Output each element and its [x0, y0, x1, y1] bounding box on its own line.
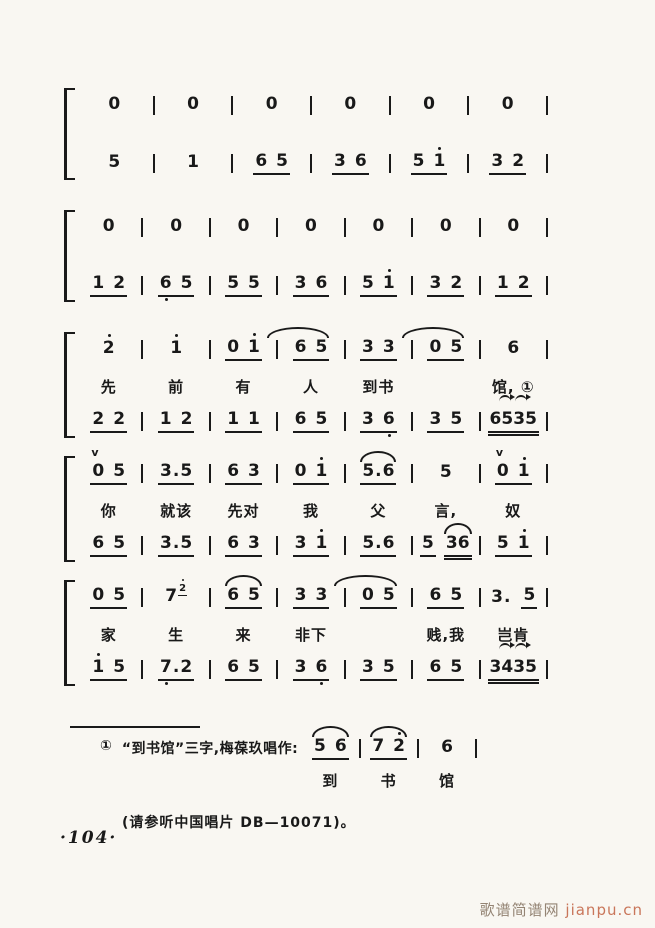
- measure: 51: [348, 274, 409, 297]
- note-group: 0: [438, 217, 454, 238]
- lyric-line: 到书馆: [304, 768, 479, 792]
- note-digit: 0: [103, 218, 115, 235]
- note-digit: 2: [393, 738, 405, 755]
- measure: 0: [415, 217, 476, 238]
- measure: 33: [280, 586, 341, 609]
- note-digit: 1: [434, 153, 446, 170]
- note-digit: 0: [187, 96, 199, 113]
- barline: [209, 218, 211, 237]
- note-group: 65: [225, 658, 262, 681]
- footnote-marker: ①: [100, 738, 112, 754]
- note-digit: 5: [248, 659, 260, 676]
- note-digit: 6: [441, 739, 453, 756]
- note-group: 3435: [488, 658, 539, 681]
- note-digit: 0: [502, 96, 514, 113]
- note-digit: 6: [92, 535, 104, 552]
- barline: [344, 536, 346, 555]
- note-group: 0: [500, 95, 516, 116]
- barline: [479, 464, 481, 483]
- note-digit: 0: [170, 218, 182, 235]
- note-digit: 2: [180, 659, 192, 676]
- measure: 5: [415, 463, 476, 484]
- system-bracket: [64, 210, 75, 302]
- note-digit: 6: [315, 659, 327, 676]
- note-group: 35: [427, 410, 464, 433]
- note-digit: 3: [334, 153, 346, 170]
- note-group: 51: [495, 534, 532, 557]
- note-digit: 1: [497, 275, 509, 292]
- watermark-site-name: 歌谱简谱网: [480, 901, 560, 919]
- note-digit: 5: [383, 659, 395, 676]
- barline: [141, 340, 143, 359]
- barline: [276, 588, 278, 607]
- notation-line: 5165365132: [78, 146, 550, 180]
- barline: [209, 340, 211, 359]
- note-digit: 2: [113, 411, 125, 428]
- measure: 0: [280, 217, 341, 238]
- note-group: 72: [163, 587, 189, 608]
- system-bracket: [64, 580, 75, 686]
- note-group: 01: [225, 338, 262, 361]
- measure: 65: [78, 534, 139, 557]
- note-group: 1: [168, 339, 184, 360]
- barline: [276, 276, 278, 295]
- note-group: 05: [360, 586, 397, 609]
- note-digit: 3: [295, 275, 307, 292]
- note-digit: 3: [362, 339, 374, 356]
- barline: [344, 412, 346, 431]
- note-digit: 1: [227, 411, 239, 428]
- note-digit: 6: [355, 153, 367, 170]
- note-digit: 5: [113, 535, 125, 552]
- note-digit: 0: [362, 587, 374, 604]
- measure: 5: [78, 153, 151, 174]
- note-group: 0: [236, 217, 252, 238]
- breath-mark-icon: v: [91, 447, 98, 458]
- lyric-cell: 就该: [145, 500, 206, 521]
- note-digit: 6: [383, 535, 395, 552]
- notation-line: 2212116536356535: [78, 404, 550, 438]
- barline: [479, 218, 481, 237]
- barline: [209, 464, 211, 483]
- augmentation-dot: .: [173, 659, 179, 676]
- lyric-line: 家生来非下贱,我岂肯: [78, 622, 550, 646]
- note-digit: 1: [315, 535, 327, 552]
- note-digit: 5: [525, 659, 537, 676]
- measure: 36: [348, 410, 409, 433]
- barline: [344, 276, 346, 295]
- note-group: 36: [293, 274, 330, 297]
- notation-line: 000000: [78, 88, 550, 122]
- note-digit: 5: [314, 738, 326, 755]
- notation-line: 653.563315.653651: [78, 528, 550, 562]
- note-digit: 5: [227, 275, 239, 292]
- barline: [344, 588, 346, 607]
- barline: [411, 536, 413, 555]
- note-group: 0: [185, 95, 201, 116]
- barline: [153, 154, 155, 173]
- augmentation-dot: .: [375, 535, 381, 552]
- measure: 05: [415, 338, 476, 361]
- note-group: 15: [90, 658, 127, 681]
- octave-dot-below: [165, 682, 168, 685]
- note-group: 65: [225, 586, 262, 609]
- note-group: 36: [293, 658, 330, 681]
- measure: 0: [235, 95, 308, 116]
- barline: [209, 588, 211, 607]
- note-group: 05: [90, 586, 127, 609]
- barline: [231, 96, 233, 115]
- note-digit: 6: [507, 340, 519, 357]
- footnote-row: ① “到书馆”三字,梅葆玖唱作: 56726到书馆: [62, 738, 562, 792]
- measure: 65: [145, 274, 206, 297]
- note-digit: 5: [422, 535, 434, 552]
- notation-system: 21016533056先前有人到书馆, ①2212116536356535: [62, 332, 550, 438]
- note-group: 3.5: [158, 462, 194, 485]
- note-group: 6535: [488, 410, 539, 433]
- system-bracket: [64, 332, 75, 438]
- note-digit: 3: [429, 411, 441, 428]
- note-digit: 6: [429, 587, 441, 604]
- note-group: 6: [505, 339, 521, 360]
- measure: 3.5: [145, 534, 206, 557]
- note-group: 65: [293, 410, 330, 433]
- note-group: 0: [264, 95, 280, 116]
- note-digit: 6: [227, 587, 239, 604]
- note-digit: 1: [315, 463, 327, 480]
- barline: [479, 660, 481, 679]
- lyric-cell: 有: [213, 376, 274, 397]
- barline: [141, 218, 143, 237]
- note-digit: 2: [103, 340, 115, 357]
- measure: 72: [363, 737, 415, 760]
- barline: [276, 660, 278, 679]
- note-group: 63: [225, 534, 262, 557]
- note-digit: 3: [491, 589, 503, 606]
- note-group: 65: [427, 586, 464, 609]
- note-digit: 3: [446, 535, 458, 552]
- note-group: 72: [370, 737, 407, 760]
- note-digit: 3: [160, 535, 172, 552]
- measure: 05: [78, 586, 139, 609]
- measure: 12: [145, 410, 206, 433]
- lyric-line: 你就该先对我父言,奴: [78, 498, 550, 522]
- lyric-cell: 贱,我: [415, 624, 476, 645]
- barline: [209, 276, 211, 295]
- measure: 36: [314, 152, 387, 175]
- barline: [141, 536, 143, 555]
- notation-system: 000000012655536513212: [62, 210, 550, 302]
- note-group: 32: [489, 152, 526, 175]
- note-group: 12: [158, 410, 195, 433]
- note-digit: 5: [108, 154, 120, 171]
- note-digit: 5: [180, 463, 192, 480]
- note-group: 0: [168, 217, 184, 238]
- barline: [411, 588, 413, 607]
- note-digit: 6: [160, 275, 172, 292]
- note-group: 11: [225, 410, 262, 433]
- notation-system: 0000005165365132: [62, 88, 550, 180]
- note-digit: 5: [362, 275, 374, 292]
- note-digit: 2: [512, 153, 524, 170]
- measure: 0: [393, 95, 466, 116]
- note-digit: 5: [501, 411, 513, 428]
- measure: 6: [421, 738, 473, 759]
- measure: 0: [157, 95, 230, 116]
- measure: 63: [213, 462, 274, 485]
- lyric-cell: 馆: [421, 770, 473, 791]
- note-digit: 6: [295, 339, 307, 356]
- barline: [276, 412, 278, 431]
- measure: 65: [235, 152, 308, 175]
- measure: 6535: [483, 410, 544, 433]
- note-group: 36: [360, 410, 397, 433]
- note-digit: 4: [501, 659, 513, 676]
- barline: [546, 412, 548, 431]
- measure: 0: [483, 217, 544, 238]
- note-digit: 5: [450, 339, 462, 356]
- barline: [344, 218, 346, 237]
- note-digit: 3: [295, 659, 307, 676]
- lyric-cell: 书: [363, 770, 415, 791]
- footnote: ① “到书馆”三字,梅葆玖唱作: 56726到书馆 (请参听中国唱片 DB—10…: [62, 726, 562, 832]
- measure: 3435: [483, 658, 544, 681]
- note-digit: 5: [450, 411, 462, 428]
- note-digit: 0: [344, 96, 356, 113]
- note-group: 31: [293, 534, 330, 557]
- note-digit: 6: [383, 411, 395, 428]
- note-group: 5: [438, 463, 454, 484]
- barline: [141, 588, 143, 607]
- note-group: 65: [158, 274, 195, 297]
- barline: [411, 412, 413, 431]
- note-group: 0: [421, 95, 437, 116]
- measure: 0: [314, 95, 387, 116]
- note-digit: 1: [383, 275, 395, 292]
- note-group: 6: [439, 738, 455, 759]
- measure: 12: [483, 274, 544, 297]
- note-digit: 7: [165, 588, 177, 605]
- barline: [344, 660, 346, 679]
- grace-note: 2: [178, 584, 187, 596]
- note-digit: 0: [92, 463, 104, 480]
- measure: 36: [280, 274, 341, 297]
- lyric-cell: 到: [304, 770, 356, 791]
- note-digit: 6: [458, 535, 470, 552]
- measure: v01: [483, 462, 544, 485]
- measure: 5.6: [348, 462, 409, 485]
- lyric-cell: 到书: [348, 376, 409, 397]
- augmentation-dot: .: [375, 463, 381, 480]
- measure: 33: [348, 338, 409, 361]
- barline: [359, 739, 361, 758]
- notation-line: 12655536513212: [78, 268, 550, 302]
- measure: 51: [393, 152, 466, 175]
- barline: [546, 660, 548, 679]
- note-group: 0: [101, 217, 117, 238]
- note-digit: 5: [440, 464, 452, 481]
- note-digit: 3: [295, 535, 307, 552]
- barline: [276, 536, 278, 555]
- note-group: 0: [106, 95, 122, 116]
- barline: [276, 218, 278, 237]
- measure: 35: [348, 658, 409, 681]
- footnote-score: 56726到书馆: [304, 732, 479, 792]
- system-bracket: [64, 456, 75, 562]
- note-digit: 5: [113, 587, 125, 604]
- note-group: 36: [332, 152, 369, 175]
- note-digit: 6: [429, 659, 441, 676]
- note-group: 33: [360, 338, 397, 361]
- note-group: 3.5: [158, 534, 194, 557]
- note-digit: 5: [450, 587, 462, 604]
- note-digit: 5: [450, 659, 462, 676]
- barline: [209, 660, 211, 679]
- measure: 0: [78, 217, 139, 238]
- note-group: 0: [505, 217, 521, 238]
- barline: [411, 218, 413, 237]
- note-digit: 1: [92, 275, 104, 292]
- footnote-separator: [70, 726, 200, 728]
- barline: [475, 739, 477, 758]
- note-digit: 3: [513, 659, 525, 676]
- lyric-cell: 奴: [483, 500, 544, 521]
- note-group: 05: [427, 338, 464, 361]
- notation-system: v053.563015.65v01你就该先对我父言,奴653.563315.65…: [62, 456, 550, 562]
- measure: 65: [415, 586, 476, 609]
- barline: [389, 154, 391, 173]
- barline: [344, 464, 346, 483]
- octave-dot-above: [182, 579, 184, 581]
- barline: [141, 464, 143, 483]
- barline: [411, 276, 413, 295]
- footnote-text: “到书馆”三字,梅葆玖唱作:: [122, 738, 298, 758]
- barline: [310, 154, 312, 173]
- note-digit: 0: [440, 218, 452, 235]
- measure: 32: [415, 274, 476, 297]
- note-digit: 1: [160, 411, 172, 428]
- note-group: 2: [101, 339, 117, 360]
- measure: 51: [483, 534, 544, 557]
- measure: 11: [213, 410, 274, 433]
- lyric-cell: 生: [145, 624, 206, 645]
- measure: 6: [483, 339, 544, 360]
- note-digit: 5: [113, 463, 125, 480]
- note-digit: 3: [362, 411, 374, 428]
- notation-system: 0572653305653.5家生来非下贱,我岂肯157.26536356534…: [62, 580, 550, 686]
- octave-dot-above: [320, 457, 323, 460]
- note-group: 63: [225, 462, 262, 485]
- tremolo-arc-icon: [499, 643, 511, 651]
- note-digit: 5: [525, 411, 537, 428]
- lyric-cell: 前: [145, 376, 206, 397]
- barline: [546, 276, 548, 295]
- note-digit: 5: [413, 153, 425, 170]
- measure: 0: [213, 217, 274, 238]
- note-group: 5.6: [360, 534, 396, 557]
- note-digit: 3: [160, 463, 172, 480]
- note-group: v05: [90, 462, 127, 485]
- note-digit: 2: [113, 275, 125, 292]
- note-digit: 5: [113, 659, 125, 676]
- measure: 536: [415, 534, 476, 557]
- breath-mark-icon: v: [496, 447, 503, 458]
- barline: [546, 464, 548, 483]
- note-group: 65: [90, 534, 127, 557]
- barline: [546, 340, 548, 359]
- note-group: 01: [293, 462, 330, 485]
- measure: 65: [213, 586, 274, 609]
- measure: 36: [280, 658, 341, 681]
- octave-dot-above: [523, 529, 526, 532]
- note-digit: 7: [160, 659, 172, 676]
- barline: [411, 660, 413, 679]
- measure: 0: [78, 95, 151, 116]
- lyric-cell: 先: [78, 376, 139, 397]
- note-digit: 5: [248, 275, 260, 292]
- note-digit: 3: [362, 659, 374, 676]
- note-digit: 0: [92, 587, 104, 604]
- measure: 3.5: [145, 462, 206, 485]
- measure: 01: [213, 338, 274, 361]
- note-group: 65: [293, 338, 330, 361]
- barline: [344, 340, 346, 359]
- note-digit: 6: [227, 535, 239, 552]
- barline: [209, 536, 211, 555]
- note-group: 36: [444, 534, 472, 557]
- measure: 72: [145, 587, 206, 608]
- lyric-line: 先前有人到书馆, ①: [78, 374, 550, 398]
- note-digit: 3: [429, 275, 441, 292]
- barline: [546, 154, 548, 173]
- tremolo-arc-icon: [515, 643, 527, 651]
- measure: 22: [78, 410, 139, 433]
- note-digit: 2: [181, 411, 193, 428]
- measure: 2: [78, 339, 139, 360]
- note-digit: 5: [248, 587, 260, 604]
- note-group: 51: [411, 152, 448, 175]
- barline: [479, 536, 481, 555]
- note-digit: 0: [266, 96, 278, 113]
- barline: [479, 412, 481, 431]
- note-group: 65: [427, 658, 464, 681]
- note-digit: 0: [429, 339, 441, 356]
- note-digit: 6: [295, 411, 307, 428]
- barline: [276, 340, 278, 359]
- measure: 55: [213, 274, 274, 297]
- note-digit: 5: [315, 411, 327, 428]
- note-digit: 5: [497, 535, 509, 552]
- barline: [479, 340, 481, 359]
- page-number: ·104·: [60, 828, 117, 848]
- note-digit: 3: [490, 659, 502, 676]
- note-digit: 5: [362, 463, 374, 480]
- octave-dot-below: [165, 298, 168, 301]
- barline: [546, 536, 548, 555]
- barline: [417, 739, 419, 758]
- note-digit: 1: [187, 154, 199, 171]
- lyric-cell: 家: [78, 624, 139, 645]
- notation-line: 0000000: [78, 210, 550, 244]
- barline: [389, 96, 391, 115]
- note-digit: 5: [181, 275, 193, 292]
- note-digit: 0: [295, 463, 307, 480]
- note-group: 5: [420, 534, 436, 557]
- tremolo-arc-icon: [515, 395, 527, 403]
- measure: 32: [471, 152, 544, 175]
- note-digit: 7: [372, 738, 384, 755]
- measure: 05: [348, 586, 409, 609]
